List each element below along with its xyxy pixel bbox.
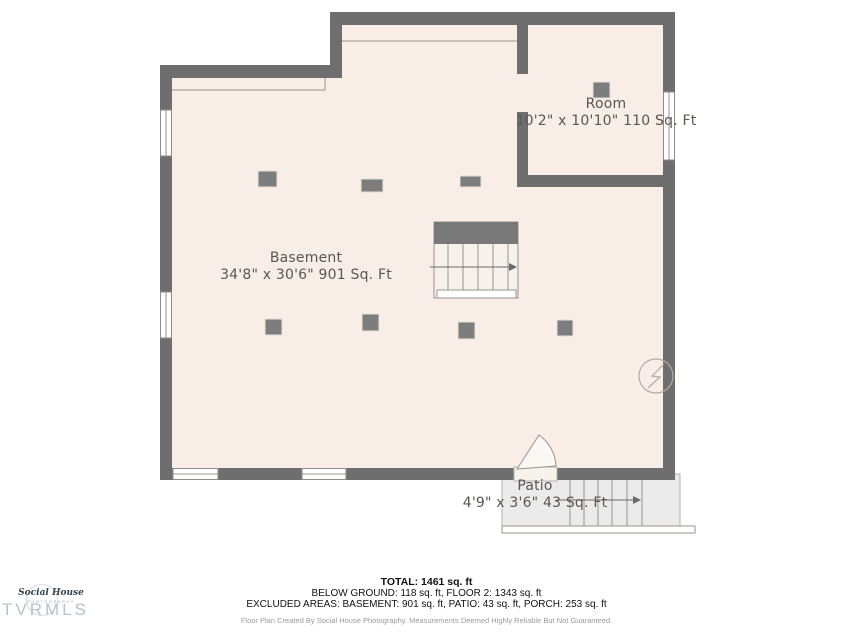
post	[460, 176, 481, 187]
area-summary: TOTAL: 1461 sq. ft BELOW GROUND: 118 sq.…	[0, 576, 853, 625]
stairs-bottom-step	[437, 290, 516, 298]
summary-below-ground: BELOW GROUND: 118 sq. ft, FLOOR 2: 1343 …	[0, 588, 853, 599]
wall-top-right	[330, 12, 675, 25]
basement-label: Basement 34'8" x 30'6" 901 Sq. Ft	[206, 250, 406, 284]
post	[362, 314, 379, 331]
patio-bottom-step	[502, 526, 695, 533]
window-bottom-middle	[302, 469, 346, 480]
patio-dims: 4'9" x 3'6" 43 Sq. Ft	[435, 495, 635, 512]
room-label: Room 10'2" x 10'10" 110 Sq. Ft	[506, 96, 706, 130]
window-left-lower	[161, 292, 172, 338]
branding: TVRMLS Social House PHOTOGRAPHY	[2, 584, 112, 634]
wall-right	[663, 12, 675, 480]
post	[265, 319, 282, 335]
patio-label: Patio 4'9" x 3'6" 43 Sq. Ft	[435, 478, 635, 512]
stairs-upper-landing	[434, 222, 518, 244]
post	[361, 179, 383, 192]
room-wall-bottom	[517, 175, 675, 187]
floor-plan-drawing	[0, 0, 853, 640]
post	[557, 320, 573, 336]
summary-total: TOTAL: 1461 sq. ft	[0, 576, 853, 588]
window-bottom-left	[173, 469, 218, 480]
logo-name: Social House	[16, 588, 86, 598]
summary-disclaimer: Floor Plan Created By Social House Photo…	[0, 616, 853, 625]
room-name: Room	[506, 96, 706, 113]
logo-subtitle: PHOTOGRAPHY	[16, 599, 86, 604]
post	[458, 322, 475, 339]
basement-floor-area	[172, 25, 663, 468]
floor-plan-page: Room 10'2" x 10'10" 110 Sq. Ft Basement …	[0, 0, 853, 640]
room-wall-left-upper	[517, 25, 528, 74]
wall-top-left	[160, 65, 342, 78]
post	[258, 171, 277, 187]
basement-name: Basement	[206, 250, 406, 267]
window-left-upper	[161, 110, 172, 156]
stairs	[430, 222, 518, 298]
room-dims: 10'2" x 10'10" 110 Sq. Ft	[506, 113, 706, 130]
patio-name: Patio	[435, 478, 635, 495]
summary-excluded: EXCLUDED AREAS: BASEMENT: 901 sq. ft, PA…	[0, 599, 853, 610]
basement-dims: 34'8" x 30'6" 901 Sq. Ft	[206, 267, 406, 284]
